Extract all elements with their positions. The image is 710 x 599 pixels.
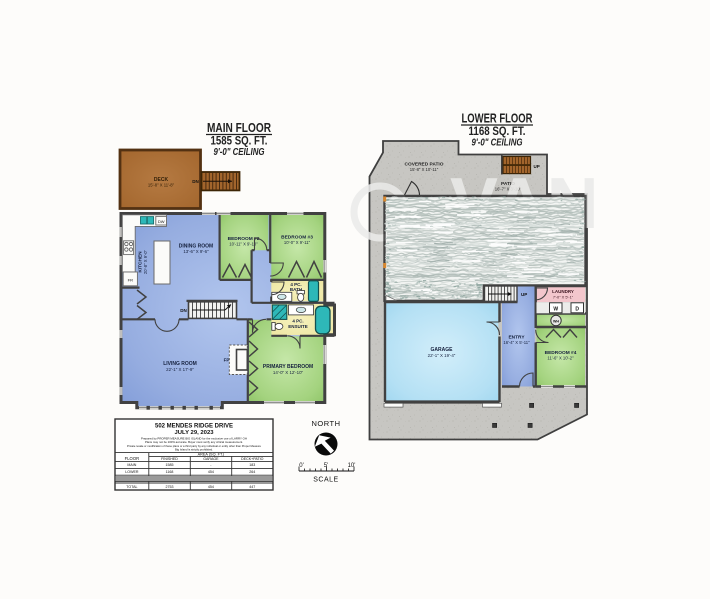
svg-text:0': 0'	[299, 463, 303, 469]
svg-text:447: 447	[249, 485, 255, 489]
svg-text:VAN: VAN	[450, 164, 600, 244]
svg-text:9'-0" CEILING: 9'-0" CEILING	[214, 147, 265, 158]
svg-text:454: 454	[208, 485, 214, 489]
svg-text:ENSUITE: ENSUITE	[288, 324, 308, 329]
svg-text:183: 183	[249, 463, 255, 467]
svg-text:16'-4" X 5'-11": 16'-4" X 5'-11"	[503, 340, 530, 345]
svg-text:NORTH: NORTH	[311, 419, 340, 428]
svg-text:4 PC.: 4 PC.	[292, 319, 303, 324]
svg-text:20'-8" X 9'-0": 20'-8" X 9'-0"	[143, 249, 148, 274]
svg-text:LOWER: LOWER	[125, 470, 139, 474]
svg-text:7'-0" X 5'-1": 7'-0" X 5'-1"	[553, 294, 574, 299]
svg-text:11'-6" X 10'-2": 11'-6" X 10'-2"	[547, 356, 574, 361]
svg-text:10'-0" X 9'-11": 10'-0" X 9'-11"	[284, 240, 311, 245]
svg-text:MAIN FLOOR: MAIN FLOOR	[207, 120, 271, 135]
svg-text:SCALE: SCALE	[313, 477, 338, 484]
svg-text:9'-0" CEILING: 9'-0" CEILING	[472, 138, 523, 149]
svg-text:D: D	[575, 307, 579, 313]
svg-text:Big Island is strictly prohibi: Big Island is strictly prohibited.	[175, 447, 213, 451]
svg-text:14'-0" X 12'-10": 14'-0" X 12'-10"	[273, 370, 304, 375]
svg-text:FLOOR: FLOOR	[125, 456, 139, 461]
svg-text:LAUNDRY: LAUNDRY	[552, 289, 574, 294]
svg-text:15'-8" X 11'-8": 15'-8" X 11'-8"	[148, 183, 175, 188]
svg-text:264: 264	[249, 470, 255, 474]
svg-text:DN: DN	[192, 179, 199, 184]
svg-text:2753: 2753	[166, 485, 174, 489]
svg-text:1585: 1585	[166, 463, 174, 467]
svg-text:10'-11" X 9'-10": 10'-11" X 9'-10"	[229, 242, 258, 247]
svg-text:454: 454	[208, 470, 214, 474]
svg-text:WH: WH	[553, 319, 559, 323]
svg-text:FP: FP	[224, 358, 230, 363]
svg-text:TOTAL: TOTAL	[126, 485, 137, 489]
svg-text:22'-1" X 19'-4": 22'-1" X 19'-4"	[428, 353, 456, 358]
svg-text:DN: DN	[180, 308, 187, 313]
svg-text:DECK+PATIO: DECK+PATIO	[241, 457, 264, 461]
svg-text:W: W	[553, 307, 558, 313]
svg-text:13'-6" X 9'-6": 13'-6" X 9'-6"	[183, 249, 209, 254]
svg-text:DW: DW	[158, 219, 165, 224]
svg-text:UP: UP	[521, 292, 527, 297]
svg-text:1585 SQ. FT.: 1585 SQ. FT.	[211, 136, 268, 148]
svg-text:GARAGE: GARAGE	[203, 457, 219, 461]
svg-text:1168: 1168	[166, 470, 174, 474]
svg-text:5': 5'	[324, 463, 328, 469]
svg-text:15'-8" X 10'-11": 15'-8" X 10'-11"	[410, 167, 439, 172]
svg-text:JULY 29, 2023: JULY 29, 2023	[175, 430, 214, 436]
svg-text:FR: FR	[128, 277, 133, 282]
svg-text:1168 SQ. FT.: 1168 SQ. FT.	[469, 126, 526, 138]
svg-text:AREA (SQ. FT.): AREA (SQ. FT.)	[198, 453, 225, 457]
svg-text:LOWER FLOOR: LOWER FLOOR	[462, 111, 533, 126]
svg-text:MAIN: MAIN	[127, 463, 136, 467]
svg-text:FINISHED: FINISHED	[161, 457, 178, 461]
svg-text:22'-1" X 17'-9": 22'-1" X 17'-9"	[166, 367, 194, 372]
svg-text:502 MENDES RIDGE DRIVE: 502 MENDES RIDGE DRIVE	[155, 424, 233, 430]
